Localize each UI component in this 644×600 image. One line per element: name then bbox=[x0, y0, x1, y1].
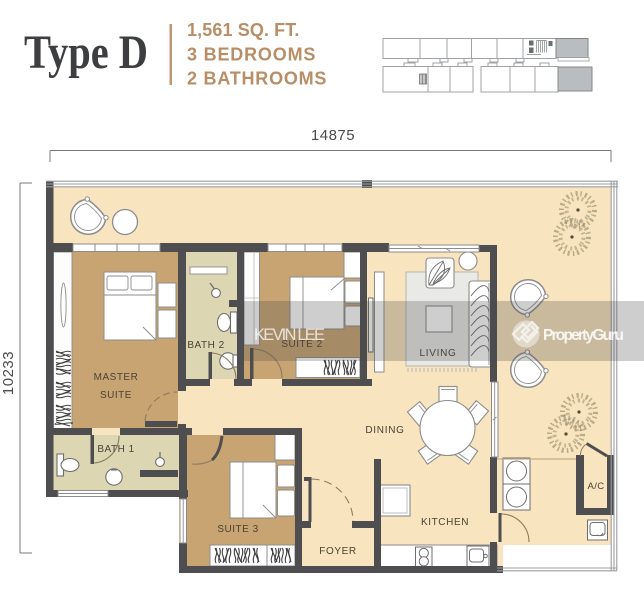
svg-text:SUITE 3: SUITE 3 bbox=[217, 524, 258, 535]
svg-text:KITCHEN: KITCHEN bbox=[421, 517, 469, 528]
svg-text:DINING: DINING bbox=[365, 425, 404, 436]
svg-text:10233: 10233 bbox=[0, 351, 17, 395]
svg-text:BATH 2: BATH 2 bbox=[187, 340, 224, 351]
svg-text:PropertyGuru: PropertyGuru bbox=[543, 327, 624, 344]
svg-text:1,561 SQ. FT.: 1,561 SQ. FT. bbox=[187, 20, 300, 40]
svg-text:2 BATHROOMS: 2 BATHROOMS bbox=[187, 69, 327, 89]
svg-text:BATH 1: BATH 1 bbox=[97, 444, 134, 455]
svg-text:MASTER: MASTER bbox=[94, 372, 139, 383]
svg-text:14875: 14875 bbox=[311, 127, 355, 144]
svg-text:Type D: Type D bbox=[24, 26, 148, 79]
svg-text:A/C: A/C bbox=[587, 481, 604, 492]
svg-text:KEVIN LEE: KEVIN LEE bbox=[254, 326, 326, 344]
svg-text:FOYER: FOYER bbox=[319, 546, 356, 557]
svg-text:SUITE: SUITE bbox=[100, 390, 132, 401]
svg-text:3 BEDROOMS: 3 BEDROOMS bbox=[187, 45, 316, 65]
